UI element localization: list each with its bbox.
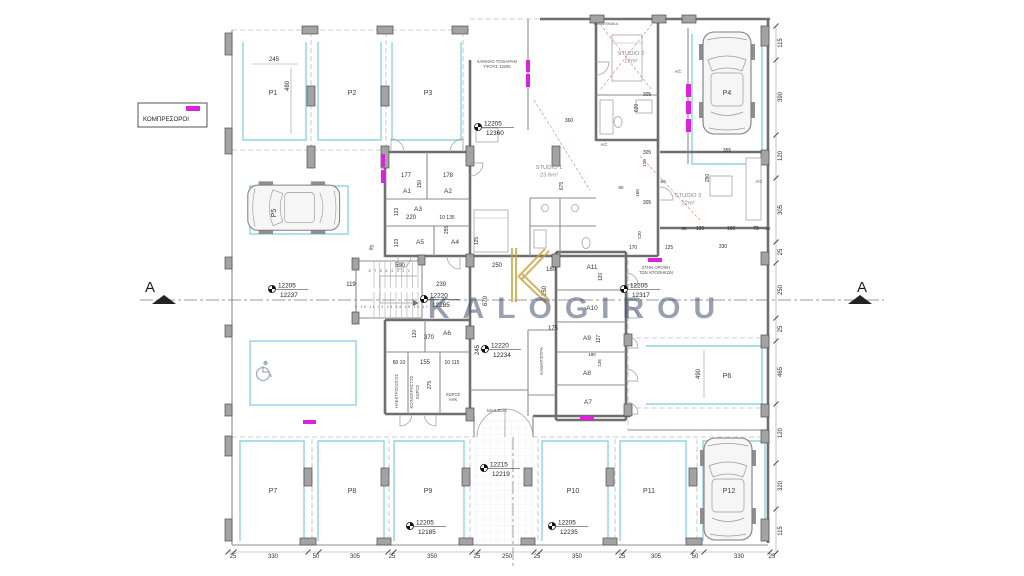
- dimension-chain-bottom: 25: [474, 554, 481, 560]
- svg-text:12205: 12205: [558, 520, 576, 527]
- watermark-text: KALOGIROU: [428, 292, 728, 325]
- dimension-label: 160: [727, 226, 736, 232]
- elevation-marker: 1222012234: [481, 343, 521, 360]
- dimension-label: 250: [492, 263, 503, 269]
- svg-text:12215: 12215: [490, 462, 508, 469]
- dimension-chain-bottom: 330: [268, 554, 279, 560]
- dimension-label: 330: [719, 244, 728, 250]
- floor-plan-page: 8 7 6 5 4 3 2 1 9 10 11 12 13 14 15 16 1…: [0, 0, 1024, 576]
- section-marker-right: A: [857, 279, 867, 296]
- dimension-chain-bottom: 25: [619, 554, 626, 560]
- storage-label-a5: A5: [416, 239, 424, 246]
- dimension-label: 180: [588, 352, 596, 357]
- dimension-label: 85: [368, 244, 376, 251]
- dimension-label: 290: [705, 174, 711, 183]
- parking-label-p9: P9: [424, 488, 433, 495]
- dimension-label: 170: [629, 245, 638, 251]
- dimension-label: 60: [618, 185, 624, 190]
- storage-label-a1: A1: [403, 188, 411, 195]
- dimension-label: 620: [634, 104, 640, 113]
- dimension-label: 180: [546, 267, 557, 273]
- dimension-label: 220: [406, 215, 417, 221]
- dimension-chain-right: 305: [778, 204, 784, 215]
- dimension-chain-bottom: 50: [692, 554, 699, 560]
- dimension-chain-right: 115: [778, 38, 784, 48]
- dimension-label: 150: [417, 180, 423, 189]
- dimension-label: 590: [395, 263, 406, 269]
- dimension-chain-right: 115: [778, 526, 784, 536]
- annotation-note: ΥΨΟΥΣ 1150Κ: [483, 64, 511, 69]
- dimension-label: 160: [635, 189, 640, 197]
- stair-numbers-run1: 8 7 6 5 4 3 2 1: [369, 269, 412, 273]
- dimension-chain-bottom: 25: [389, 554, 396, 560]
- dimension-chain-right: 25: [778, 325, 784, 332]
- dimension-chain-right: 390: [778, 91, 784, 102]
- svg-text:12205: 12205: [484, 121, 502, 128]
- dimension-label: 10 135: [439, 215, 455, 221]
- storage-label-a6: A6: [443, 330, 451, 337]
- dimension-label: 60: [660, 179, 666, 184]
- dimension-label: 80 10: [393, 360, 406, 366]
- svg-text:12205: 12205: [416, 520, 434, 527]
- benchmark-icon: [272, 285, 276, 289]
- dimension-label: 123: [394, 208, 400, 217]
- dimension-label: 125: [474, 237, 480, 246]
- parking-label-p4: P4: [723, 90, 732, 97]
- benchmark-icon: [410, 522, 414, 526]
- parking-label-p1: P1: [269, 90, 278, 97]
- svg-text:12219: 12219: [492, 471, 510, 478]
- svg-text:12185: 12185: [418, 529, 436, 536]
- dimension-label: 177: [401, 173, 412, 179]
- dimension-label: 370: [424, 335, 435, 341]
- dimension-label: 120: [696, 226, 705, 232]
- dimension-chain-right: 320: [778, 480, 784, 491]
- benchmark-icon: [478, 123, 482, 127]
- dimension-label: 155: [420, 360, 431, 366]
- svg-text:12234: 12234: [493, 352, 511, 359]
- annotation-note: ΚΑΘΑΡΙΣΤΡΑ: [539, 347, 544, 375]
- dimension-chain-bottom: 350: [572, 554, 583, 560]
- dimension-label: 305: [643, 200, 652, 206]
- dimension-label: 360: [565, 118, 574, 124]
- dimension-chain-right: 120: [778, 427, 784, 438]
- dimension-label: 127: [596, 335, 602, 344]
- dimension-chain-bottom: 305: [651, 554, 662, 560]
- dimension-label: 480: [285, 80, 291, 91]
- benchmark-icon: [552, 522, 556, 526]
- wheelchair-icon: [257, 361, 272, 381]
- parking-label-p6: P6: [723, 373, 732, 380]
- dimension-label: 490: [696, 368, 702, 379]
- dimension-chain-bottom: 250: [502, 554, 513, 560]
- parking-label-p7: P7: [269, 488, 278, 495]
- storage-label-a7: A7: [584, 399, 592, 406]
- storage-label-a4: A4: [451, 239, 459, 246]
- dimension-label: 25: [765, 226, 771, 231]
- legend-swatch: [186, 106, 200, 111]
- studio-name-3: STUDIO 3: [675, 193, 702, 199]
- studio-name-1: STUDIO 1: [536, 165, 563, 171]
- studio-area-1: 23.6m²: [540, 173, 558, 179]
- annotation-note: ΤΩΝ ΑΠΟΘΗΚΩΝ: [639, 270, 673, 275]
- dimension-label: 120: [642, 159, 647, 167]
- annotation-note: ΑΗΚ: [449, 397, 458, 402]
- parking-label-p8: P8: [348, 488, 357, 495]
- svg-text:12220: 12220: [491, 343, 509, 350]
- parking-label-p12: P12: [723, 488, 736, 495]
- svg-text:12205: 12205: [278, 283, 296, 290]
- svg-text:12237: 12237: [280, 292, 298, 299]
- dimension-label: 120: [598, 273, 604, 282]
- dimension-label: 239: [436, 282, 447, 288]
- svg-text:12360: 12360: [486, 130, 504, 137]
- dimension-label: 75: [753, 226, 759, 232]
- dimension-label: 120: [412, 330, 418, 339]
- annotation-note: ΧΩΡΟΣ: [415, 384, 420, 399]
- dimension-label: 275: [427, 381, 433, 390]
- legend-label: ΚΟΜΠΡΕΣΟΡΟΙ: [143, 116, 189, 123]
- dimension-chain-bottom: 330: [734, 554, 745, 560]
- annotation-note: A/C: [756, 179, 763, 184]
- svg-text:12235: 12235: [560, 529, 578, 536]
- dimension-label: 123: [394, 239, 400, 248]
- section-arrow-right: [848, 295, 872, 304]
- dimension-label: 305: [643, 92, 652, 98]
- dimension-label: 120: [637, 231, 642, 239]
- annotation-note: A/C: [601, 142, 608, 147]
- section-marker-left: A: [145, 279, 155, 296]
- storage-label-a8: A8: [583, 370, 591, 377]
- storage-label-a3: A3: [414, 206, 422, 213]
- dimension-chain-right: 25: [778, 248, 784, 255]
- section-arrow-left: [152, 295, 176, 304]
- storage-label-a9: A9: [583, 335, 591, 342]
- annotation-note: ΚΟΙΝΟΧΡΗΣΤΟΣ: [409, 375, 414, 408]
- dimension-label: 245: [475, 344, 481, 355]
- dimension-chain-right: 120: [778, 150, 784, 161]
- dimension-label: 119: [346, 282, 356, 288]
- annotation-note: ΗΛΕΚΤΡΟΛΟΓΟΣ: [394, 374, 399, 408]
- dimension-chain-right: 250: [778, 284, 784, 295]
- dimension-chain-bottom: 25: [534, 554, 541, 560]
- annotation-note: ΚΟΙΤΑ ΠΙΝΑΚΑ: [594, 22, 619, 26]
- parking-label-p2: P2: [348, 90, 357, 97]
- car-p5: [248, 181, 340, 234]
- dimension-label: 125: [665, 245, 674, 251]
- studio-area-3: 22m²: [681, 201, 694, 207]
- parking-label-p10: P10: [567, 488, 580, 495]
- svg-text:12205: 12205: [630, 283, 648, 290]
- storage-label-a2: A2: [444, 188, 452, 195]
- elevation-marker: 1220512237: [268, 283, 308, 300]
- dimension-label: 10 115: [445, 360, 460, 366]
- dimension-chain-bottom: 350: [427, 554, 438, 560]
- dimension-label: 175: [548, 326, 559, 332]
- annotation-note: A/C: [675, 69, 682, 74]
- dimension-chain-bottom: 25: [230, 554, 237, 560]
- parking-label-p11: P11: [643, 488, 655, 495]
- legend-compressors: ΚΟΜΠΡΕΣΟΡΟΙ: [138, 103, 207, 127]
- dimension-label: 305: [643, 150, 652, 156]
- dimension-label: 178: [443, 173, 454, 179]
- dimension-label: 355: [723, 148, 732, 154]
- parking-label-p3: P3: [424, 90, 433, 97]
- dimension-label: 126: [597, 359, 602, 367]
- floor-plan-canvas: 8 7 6 5 4 3 2 1 9 10 11 12 13 14 15 16 1…: [0, 0, 1024, 576]
- annotation-note: MAILBOX: [487, 408, 507, 413]
- dimension-chain-bottom: 25: [769, 554, 776, 560]
- studio-area-2: 22m²: [624, 59, 637, 65]
- dimension-label: 675: [559, 182, 565, 191]
- dimension-chain-bottom: 50: [313, 554, 320, 560]
- dimension-label: 25: [681, 226, 687, 231]
- dimension-label: 245: [269, 57, 280, 63]
- parking-label-p5: P5: [271, 209, 278, 218]
- car-p4: [699, 32, 755, 134]
- benchmark-icon: [485, 345, 489, 349]
- dimension-label: 255: [444, 226, 450, 235]
- elevation-marker: 1220512235: [548, 520, 588, 537]
- studio-name-2: STUDIO 2: [618, 51, 645, 57]
- dimension-chain-bottom: 305: [350, 554, 361, 560]
- dimension-chain-right: 465: [778, 366, 784, 377]
- storage-label-a11: A11: [586, 264, 597, 271]
- elevation-marker: 1220512185: [406, 520, 446, 537]
